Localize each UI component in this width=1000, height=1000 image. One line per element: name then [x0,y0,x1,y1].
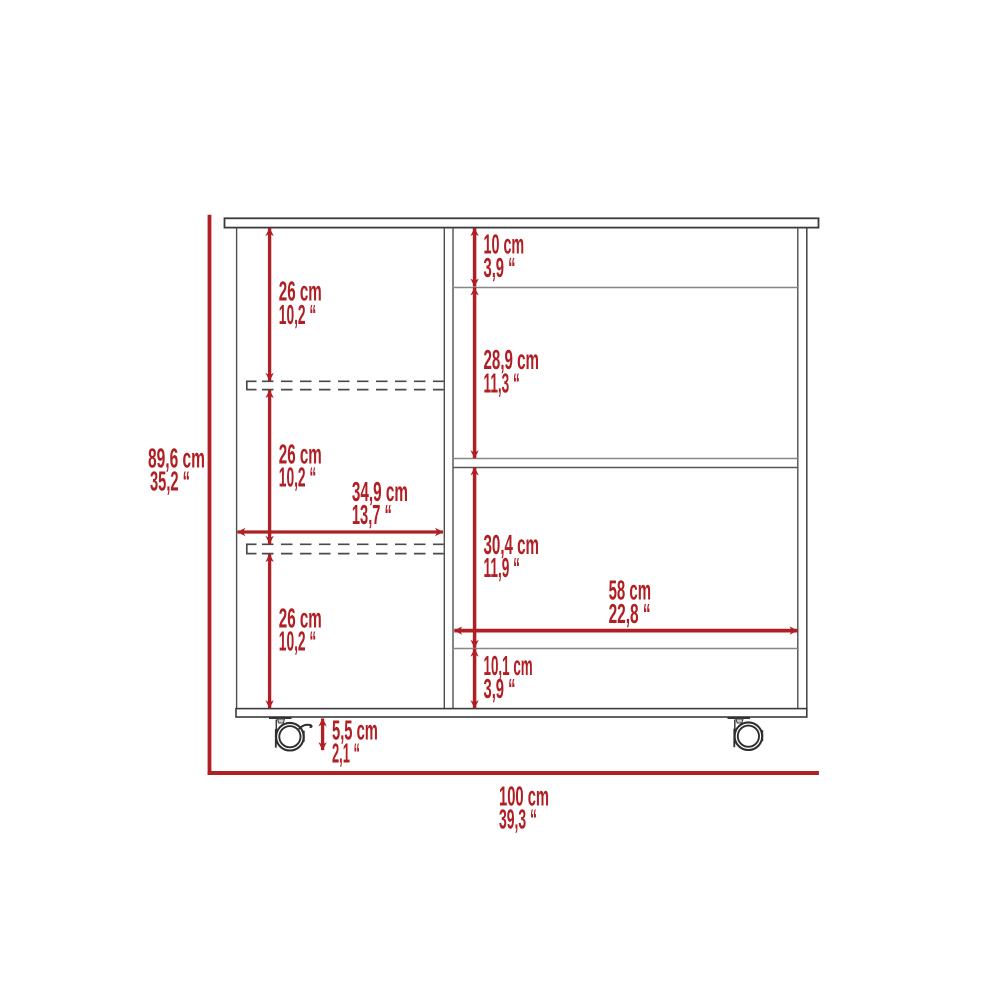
svg-text:35,2 “: 35,2 “ [150,466,190,497]
svg-text:10,2 “: 10,2 “ [279,299,317,330]
svg-text:39,3 “: 39,3 “ [499,804,537,835]
svg-text:2,1 “: 2,1 “ [332,738,360,769]
svg-text:11,3 “: 11,3 “ [484,368,520,399]
svg-text:3,9 “: 3,9 “ [484,252,516,283]
svg-text:11,9 “: 11,9 “ [484,552,521,583]
svg-text:13,7 “: 13,7 “ [352,499,392,530]
svg-text:10,2 “: 10,2 “ [279,626,317,657]
svg-text:10,2 “: 10,2 “ [279,462,317,493]
svg-text:3,9 “: 3,9 “ [484,673,516,704]
svg-text:22,8 “: 22,8 “ [609,598,651,629]
